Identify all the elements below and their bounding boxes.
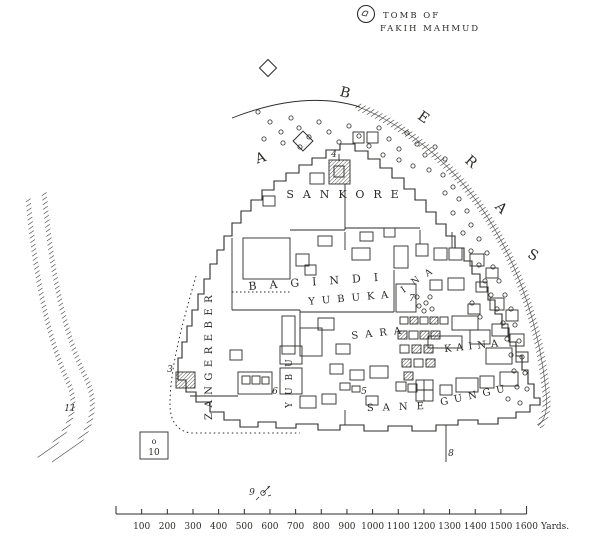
scale-tick-label: 600 — [261, 522, 278, 532]
tomb-label-line1: TOMB OF — [383, 11, 440, 21]
tomb-marker — [358, 6, 375, 23]
scale-tick-label: 800 — [313, 522, 330, 532]
building — [426, 359, 435, 367]
tree-dot — [489, 293, 493, 297]
compass-icon — [256, 486, 271, 500]
tree-dot — [457, 197, 461, 201]
building — [243, 238, 290, 279]
tree-dot — [430, 307, 434, 311]
west-valley-hachures — [28, 192, 92, 462]
scale-tick-label: 900 — [338, 522, 355, 532]
building — [252, 376, 260, 384]
marker-number: 7 — [409, 294, 415, 304]
tree-dot — [518, 401, 522, 405]
quarter-labels: SANKOREBAGINDIYUBUKASARAKAINASANEGUNGUIN… — [204, 84, 541, 420]
building — [430, 317, 438, 324]
tree-dot — [517, 339, 521, 343]
tree-dot — [451, 185, 455, 189]
tree-dot — [381, 153, 385, 157]
scale-tick-label: 700 — [287, 522, 304, 532]
building — [468, 304, 480, 314]
building — [416, 244, 428, 256]
marker-number: 8 — [448, 449, 454, 459]
building — [440, 317, 448, 324]
quarter-label: KAINA — [444, 338, 504, 355]
tree-dot — [523, 371, 527, 375]
scale-tick-label: 1500 — [489, 522, 512, 532]
scale-tick-label: 1000 — [361, 522, 384, 532]
scale-tick-label: 1400 — [464, 522, 487, 532]
building — [492, 324, 508, 336]
building — [329, 160, 350, 184]
reference-box-number: 10 — [148, 448, 160, 458]
tree-dot — [377, 126, 381, 130]
building — [322, 394, 336, 404]
building — [400, 317, 408, 324]
buildings — [176, 132, 528, 408]
building — [434, 248, 447, 260]
building — [402, 359, 411, 367]
vertical-label: YUBU — [285, 352, 295, 409]
edge-letter: R — [461, 153, 480, 172]
building — [300, 328, 322, 356]
building — [384, 228, 395, 237]
scale-bar: 1002003004005006007008009001000110012001… — [116, 506, 538, 532]
building — [412, 345, 421, 353]
tree-dot — [317, 120, 321, 124]
building — [318, 236, 332, 246]
quarter-label: SANKORE — [286, 188, 407, 201]
quarter-label: GUNGU — [439, 383, 511, 409]
scale-tick-label: 1300 — [438, 522, 461, 532]
marker-number: 4 — [330, 150, 337, 160]
building — [486, 348, 512, 364]
ridge-line — [232, 100, 360, 118]
scale-unit-label: Yards. — [540, 522, 569, 532]
outlying-structures — [260, 60, 313, 151]
building — [305, 265, 316, 275]
building — [506, 310, 518, 321]
tree-dot — [347, 124, 351, 128]
quarter-label: SANE — [367, 401, 433, 414]
building — [396, 382, 406, 391]
building — [400, 345, 409, 353]
tree-dot — [427, 168, 431, 172]
scale-tick-label: 200 — [159, 522, 176, 532]
building — [416, 380, 433, 401]
tree-dot — [451, 211, 455, 215]
tree-dot — [428, 295, 432, 299]
building — [350, 370, 364, 380]
scale-tick-label: 300 — [184, 522, 201, 532]
tree-dot — [443, 191, 447, 195]
reference-box: o 10 — [140, 432, 168, 459]
tree-dot — [397, 158, 401, 162]
map-page: TOMB OF FAKIH MAHMUD SANKOREBAGINDIYUBUK… — [0, 0, 600, 537]
scale-tick-label: 400 — [210, 522, 227, 532]
building — [310, 173, 324, 184]
tree-dot — [441, 173, 445, 177]
tree-dot — [483, 279, 487, 283]
tree-dot — [512, 369, 516, 373]
building — [440, 385, 452, 395]
reference-box-symbol: o — [152, 437, 157, 446]
tree-dot — [525, 387, 529, 391]
tree-dot — [417, 304, 421, 308]
building — [449, 248, 462, 260]
building — [352, 248, 370, 260]
tree-dot — [477, 237, 481, 241]
building — [336, 344, 350, 354]
tree-dot — [367, 144, 371, 148]
building — [230, 350, 242, 360]
tree-dot — [411, 164, 415, 168]
quarter-label: BAGINDI — [248, 270, 392, 293]
building — [448, 278, 464, 290]
building — [431, 331, 440, 339]
tree-dot — [357, 134, 361, 138]
marker-number: 3 — [167, 365, 173, 375]
building — [430, 280, 442, 290]
marker-number: 6 — [272, 387, 278, 397]
building — [360, 232, 373, 241]
building — [486, 268, 498, 278]
marker-number: 9 — [249, 488, 255, 498]
edge-letter: E — [415, 108, 433, 127]
building — [367, 132, 378, 143]
tree-dot — [515, 385, 519, 389]
vertical-label: ZANGEREBER — [204, 290, 215, 420]
tree-dot — [461, 231, 465, 235]
building — [262, 377, 269, 384]
building — [452, 316, 478, 330]
tree-dot — [423, 153, 427, 157]
building — [242, 376, 250, 384]
scale-tick-label: 1200 — [412, 522, 435, 532]
tree-dot — [470, 301, 474, 305]
tree-dot — [433, 145, 437, 149]
tree-dot — [506, 397, 510, 401]
tree-dot — [297, 126, 301, 130]
tree-dot — [327, 130, 331, 134]
tree-dot — [387, 137, 391, 141]
building — [330, 364, 343, 374]
scale-tick-label: 500 — [236, 522, 253, 532]
tree-dot — [478, 315, 482, 319]
tree-dot — [262, 137, 266, 141]
tree-dot — [469, 223, 473, 227]
edge-letter: A — [253, 149, 269, 168]
tree-dot — [422, 309, 426, 313]
tree-dot — [424, 301, 428, 305]
diagonal-letter: I — [400, 285, 409, 295]
building — [410, 317, 418, 324]
building — [263, 196, 275, 206]
building — [420, 317, 428, 324]
building — [394, 246, 408, 268]
tomb-label-line2: FAKIH MAHMUD — [380, 24, 480, 34]
building — [424, 345, 433, 353]
tree-dot — [469, 249, 473, 253]
tree-dot — [509, 353, 513, 357]
building — [414, 359, 423, 367]
tree-dot — [491, 265, 495, 269]
tree-dot — [465, 209, 469, 213]
tree-dot — [256, 110, 260, 114]
tree-dot — [289, 116, 293, 120]
tree-dot — [513, 323, 517, 327]
building — [340, 383, 350, 390]
diagonal-letter: A — [423, 267, 435, 280]
tree-dot — [415, 295, 419, 299]
building — [404, 372, 413, 380]
tree-dot — [503, 293, 507, 297]
marker-numbers: 345678911 — [64, 150, 454, 498]
building — [282, 316, 295, 354]
building — [352, 386, 360, 392]
edge-letter: B — [338, 84, 352, 102]
tree-dot — [397, 147, 401, 151]
building — [238, 372, 272, 394]
building — [176, 372, 195, 388]
diagonal-letter: N — [410, 275, 422, 288]
building — [409, 331, 418, 339]
scale-tick-label: 1100 — [387, 522, 410, 532]
tree-dot — [281, 141, 285, 145]
dotted-boundary — [170, 276, 300, 433]
tree-dot — [509, 307, 513, 311]
tree-dot — [279, 130, 283, 134]
marker-number: 5 — [361, 387, 367, 397]
edge-letter: S — [525, 246, 541, 265]
tree-dot — [497, 279, 501, 283]
tree-dot — [477, 263, 481, 267]
building — [370, 366, 388, 378]
tree-dot — [337, 140, 341, 144]
tree-dot — [268, 120, 272, 124]
building — [296, 254, 309, 266]
marker-number: 11 — [64, 404, 75, 414]
scale-tick-label: 1600 — [515, 522, 538, 532]
building — [300, 396, 316, 408]
quarter-label: YUBUKA — [307, 289, 396, 308]
tree-dots — [256, 110, 529, 405]
scale-tick-label: 100 — [133, 522, 150, 532]
building — [420, 331, 429, 339]
timbuktu-plan-map: TOMB OF FAKIH MAHMUD SANKOREBAGINDIYUBUK… — [0, 0, 600, 537]
edge-letter: A — [491, 198, 511, 218]
tree-dot — [485, 251, 489, 255]
